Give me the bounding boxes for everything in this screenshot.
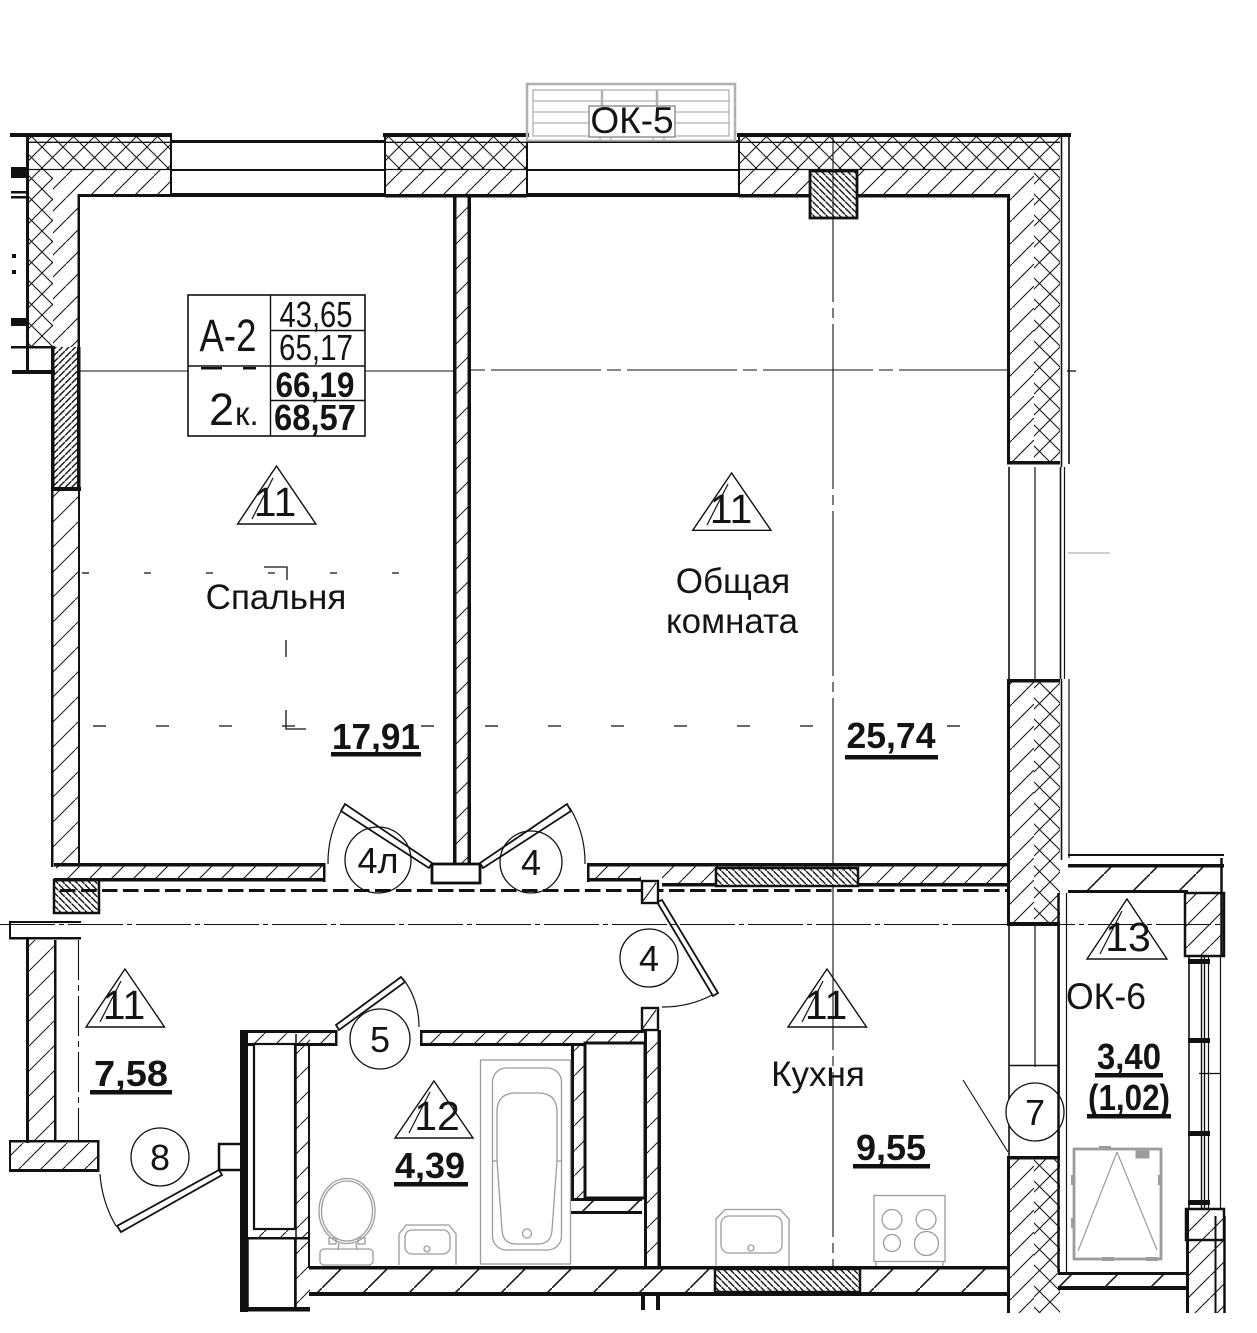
svg-text:7,58: 7,58 xyxy=(94,1053,168,1094)
svg-text:Спальня: Спальня xyxy=(206,578,347,617)
svg-text:11: 11 xyxy=(710,486,753,532)
svg-text:12: 12 xyxy=(414,1093,460,1139)
svg-text:ОК-6: ОК-6 xyxy=(1066,976,1146,1017)
svg-text:3,40: 3,40 xyxy=(1097,1036,1161,1077)
svg-text:7: 7 xyxy=(1025,1092,1045,1133)
svg-text:25,74: 25,74 xyxy=(847,715,936,756)
svg-text:5: 5 xyxy=(370,1019,390,1060)
svg-text:4: 4 xyxy=(521,842,541,883)
svg-text:комната: комната xyxy=(666,602,799,641)
svg-text:4,39: 4,39 xyxy=(395,1145,465,1186)
svg-text:65,17: 65,17 xyxy=(279,327,353,368)
svg-text:9,55: 9,55 xyxy=(856,1127,926,1168)
svg-text:(1,02): (1,02) xyxy=(1088,1077,1170,1118)
svg-text:13: 13 xyxy=(1105,914,1151,960)
svg-text:8: 8 xyxy=(150,1137,170,1178)
svg-text:А-2: А-2 xyxy=(200,310,257,361)
svg-text:11: 11 xyxy=(103,982,146,1028)
svg-text:4л: 4л xyxy=(357,840,398,881)
svg-text:11: 11 xyxy=(805,982,848,1028)
svg-text:к.: к. xyxy=(235,395,259,432)
svg-text:11: 11 xyxy=(254,479,297,525)
svg-text:68,57: 68,57 xyxy=(274,397,356,438)
svg-text:17,91: 17,91 xyxy=(332,716,420,757)
svg-text:Кухня: Кухня xyxy=(771,1055,865,1094)
svg-text:Общая: Общая xyxy=(676,562,791,601)
svg-text:4: 4 xyxy=(639,938,659,979)
svg-text:ОК-5: ОК-5 xyxy=(590,100,673,141)
svg-text:2: 2 xyxy=(209,384,234,435)
